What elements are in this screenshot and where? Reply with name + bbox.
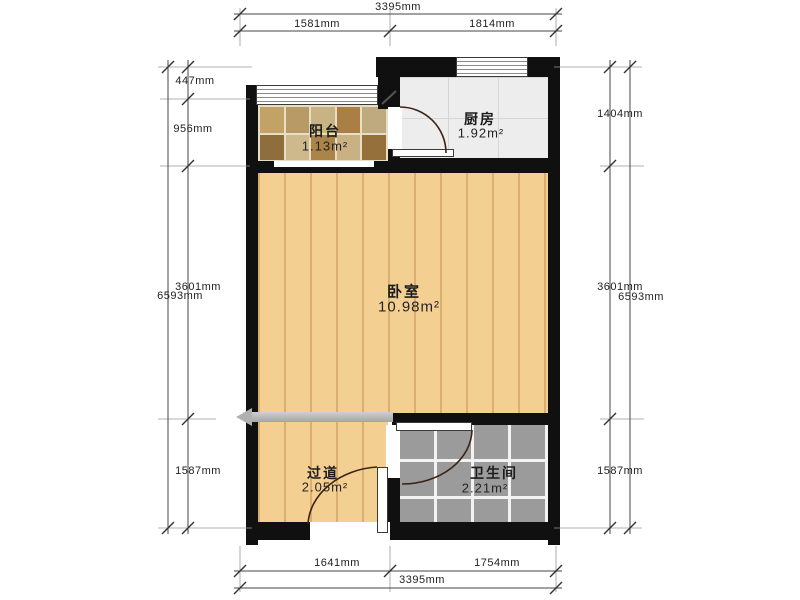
dim-left-seg-2: 956mm xyxy=(173,123,212,135)
sliding-door-arrow-icon xyxy=(236,408,252,426)
bathroom-area: 2.21m² xyxy=(462,481,508,496)
wall-hallway-bathroom xyxy=(386,478,400,522)
wall-threshold-stub-right xyxy=(374,161,392,167)
balcony-tile xyxy=(260,107,284,133)
sliding-door-band xyxy=(252,412,393,422)
entry-door-leaf xyxy=(377,467,388,533)
kitchen-window xyxy=(456,57,528,77)
dim-right-seg-3: 1587mm xyxy=(597,465,643,477)
kitchen-area: 1.92m² xyxy=(458,126,504,141)
dim-top-seg-1: 1581mm xyxy=(294,18,340,30)
dim-bottom-overall: 3395mm xyxy=(399,574,445,586)
bathroom-door-leaf xyxy=(396,422,472,431)
dim-left-seg-4: 1587mm xyxy=(175,465,221,477)
floor-plan: 阳台 1.13m² 厨房 1.92m² 卧室 10.98m² 过道 2.05m²… xyxy=(0,0,800,600)
dim-left-seg-1: 447mm xyxy=(175,75,214,87)
wall-balcony-kitchen-divider xyxy=(378,57,400,109)
balcony-window xyxy=(256,85,378,105)
dim-right-seg-1: 1404mm xyxy=(597,108,643,120)
balcony-tile xyxy=(286,107,310,133)
balcony-tile xyxy=(362,107,386,133)
dim-bottom-seg-1: 1641mm xyxy=(314,557,360,569)
wall-balcony-bottom xyxy=(246,167,392,173)
dim-bottom-seg-2: 1754mm xyxy=(474,557,520,569)
bedroom-area: 10.98m² xyxy=(378,299,440,316)
wall-right xyxy=(548,57,560,545)
balcony-tile xyxy=(260,135,284,161)
wall-kitchen-bottom xyxy=(388,158,560,173)
balcony-opening xyxy=(274,161,374,167)
kitchen-door-opening xyxy=(388,107,402,149)
balcony-tile xyxy=(362,135,386,161)
dim-right-overall: 6593mm xyxy=(618,291,664,303)
wall-bottom-left xyxy=(246,522,310,540)
dim-top-seg-2: 1814mm xyxy=(469,18,515,30)
wall-threshold-stub-left xyxy=(258,161,274,167)
dim-left-overall: 6593mm xyxy=(157,290,203,302)
hallway-area: 2.05m² xyxy=(302,480,348,495)
kitchen-door-leaf xyxy=(392,149,454,157)
bathroom-door-opening xyxy=(386,425,400,478)
balcony-area: 1.13m² xyxy=(302,139,348,154)
wall-left xyxy=(246,85,258,545)
dim-top-overall: 3395mm xyxy=(375,1,421,13)
wall-bottom-right xyxy=(390,522,560,540)
